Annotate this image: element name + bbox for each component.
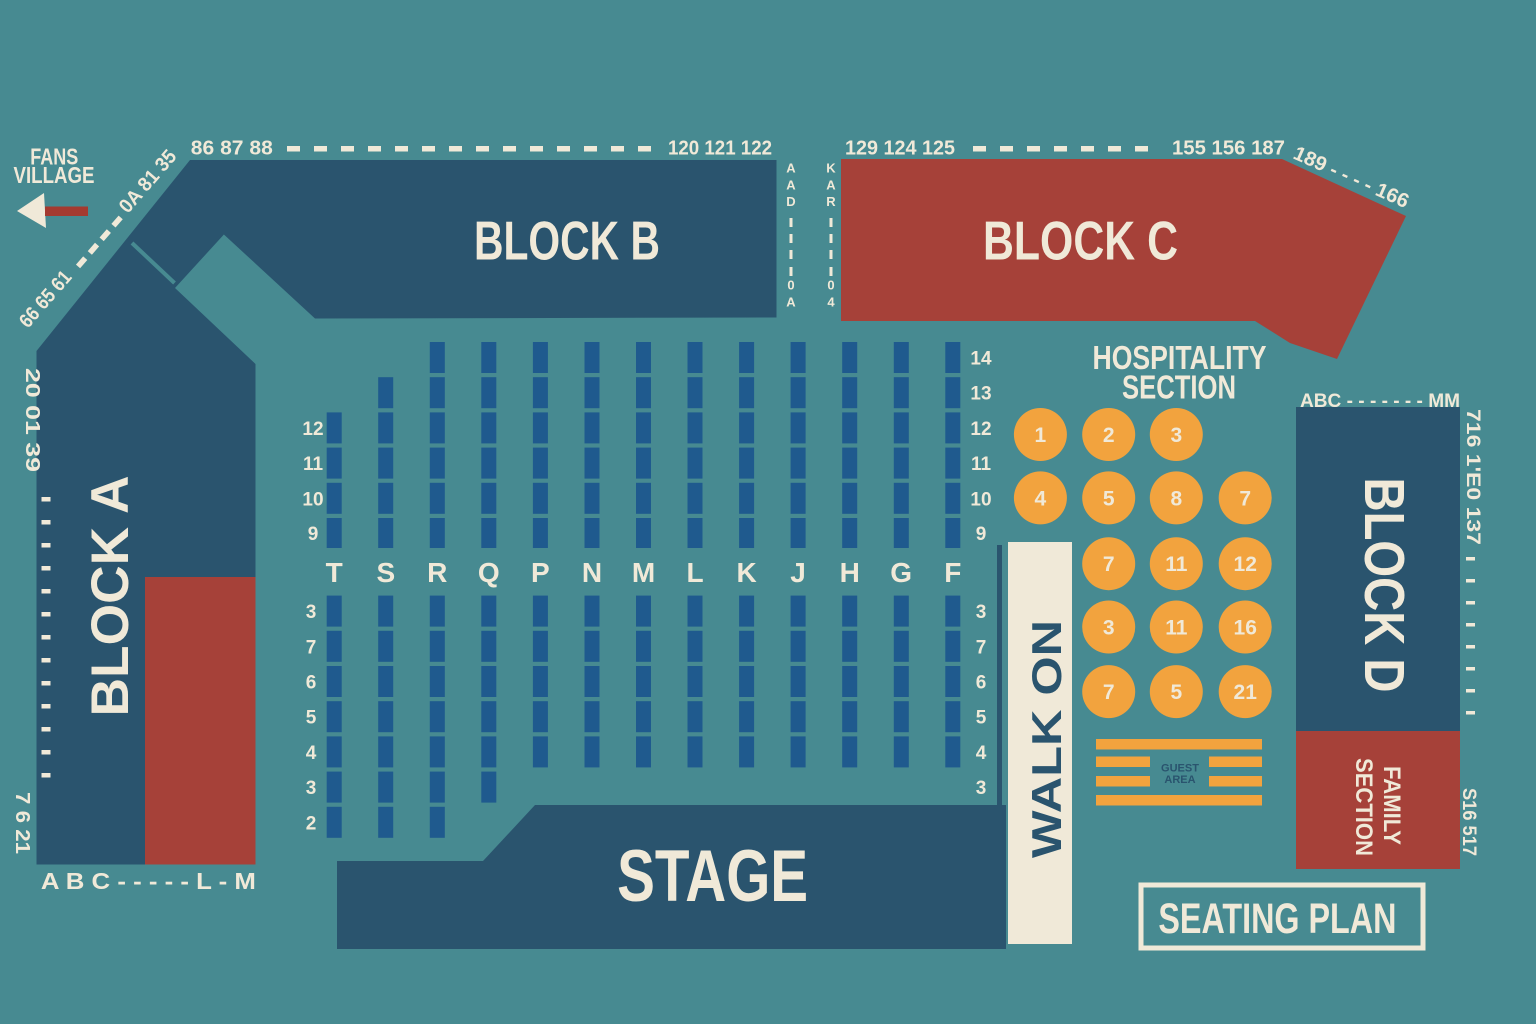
svg-text:3: 3 (976, 778, 987, 799)
svg-text:T: T (326, 557, 343, 588)
svg-text:A: A (786, 178, 796, 193)
svg-text:BLOCK D: BLOCK D (1352, 478, 1416, 693)
svg-text:J: J (790, 557, 806, 588)
svg-text:11: 11 (303, 454, 324, 475)
svg-text:BLOCK B: BLOCK B (474, 209, 660, 271)
svg-text:SECTION: SECTION (1350, 758, 1377, 856)
svg-text:129 124 125: 129 124 125 (845, 138, 955, 160)
svg-text:7: 7 (306, 637, 317, 658)
svg-text:716 1'E0 137: 716 1'E0 137 (1462, 409, 1483, 545)
svg-text:1: 1 (1035, 424, 1047, 447)
svg-text:0: 0 (827, 278, 834, 293)
svg-text:G: G (890, 557, 912, 588)
svg-text:H: H (840, 557, 860, 588)
svg-text:86 87 88: 86 87 88 (191, 138, 273, 160)
svg-text:5: 5 (1170, 681, 1182, 704)
svg-text:AREA: AREA (1164, 774, 1195, 786)
svg-text:5: 5 (1103, 487, 1115, 510)
svg-text:A B C - - - - - L - M: A B C - - - - - L - M (41, 868, 256, 894)
svg-text:S16 517: S16 517 (1458, 788, 1479, 856)
svg-text:SECTION: SECTION (1122, 369, 1236, 406)
svg-text:7 6 21: 7 6 21 (11, 792, 33, 854)
svg-text:11: 11 (1165, 617, 1188, 640)
svg-text:7: 7 (1103, 681, 1115, 704)
svg-text:BLOCK A: BLOCK A (81, 476, 140, 717)
svg-text:2: 2 (1103, 424, 1115, 447)
svg-text:9: 9 (308, 524, 319, 545)
svg-text:10: 10 (302, 489, 323, 510)
svg-text:4: 4 (306, 743, 317, 764)
svg-text:120 121 122: 120 121 122 (668, 138, 772, 160)
svg-text:12: 12 (1234, 553, 1257, 576)
svg-text:9: 9 (976, 524, 987, 545)
svg-text:BLOCK C: BLOCK C (983, 210, 1178, 272)
svg-text:F: F (944, 557, 961, 588)
svg-text:12: 12 (970, 419, 991, 440)
svg-text:WALK ON: WALK ON (1023, 620, 1070, 858)
svg-text:K: K (826, 161, 836, 176)
svg-text:A: A (826, 178, 836, 193)
svg-text:D: D (786, 194, 795, 209)
svg-text:STAGE: STAGE (617, 836, 808, 917)
svg-text:8: 8 (1170, 487, 1182, 510)
svg-text:A: A (786, 161, 796, 176)
svg-text:FAMILY: FAMILY (1378, 766, 1405, 845)
svg-text:14: 14 (970, 349, 992, 370)
svg-text:21: 21 (1234, 681, 1258, 704)
svg-text:4: 4 (976, 743, 987, 764)
svg-text:R: R (427, 557, 447, 588)
svg-text:2: 2 (306, 813, 317, 834)
svg-text:6: 6 (306, 673, 317, 694)
svg-text:SEATING PLAN: SEATING PLAN (1158, 895, 1396, 943)
svg-text:R: R (826, 194, 836, 209)
svg-text:L: L (686, 557, 703, 588)
svg-text:7: 7 (1239, 487, 1251, 510)
svg-text:13: 13 (970, 384, 991, 405)
svg-text:ABC - - - - - - - MM: ABC - - - - - - - MM (1300, 391, 1460, 412)
svg-text:7: 7 (976, 637, 987, 658)
svg-text:0: 0 (787, 278, 794, 293)
svg-text:A: A (786, 295, 796, 310)
svg-text:3: 3 (306, 778, 317, 799)
svg-text:3: 3 (976, 602, 987, 623)
svg-text:M: M (632, 557, 655, 588)
svg-text:VILLAGE: VILLAGE (14, 162, 95, 188)
svg-text:4: 4 (827, 295, 835, 310)
svg-text:6: 6 (976, 673, 987, 694)
svg-text:3: 3 (1103, 617, 1115, 640)
svg-text:5: 5 (306, 708, 317, 729)
svg-text:12: 12 (302, 419, 323, 440)
svg-text:16: 16 (1234, 617, 1257, 640)
svg-text:11: 11 (1165, 553, 1188, 576)
svg-text:GUEST: GUEST (1161, 763, 1199, 775)
svg-text:5: 5 (976, 708, 987, 729)
svg-text:10: 10 (970, 489, 991, 510)
svg-text:3: 3 (306, 602, 317, 623)
svg-text:3: 3 (1170, 424, 1182, 447)
svg-text:K: K (736, 557, 756, 588)
svg-text:7: 7 (1103, 553, 1115, 576)
svg-text:P: P (531, 557, 550, 588)
svg-text:N: N (582, 557, 602, 588)
svg-text:S: S (376, 557, 395, 588)
svg-text:11: 11 (971, 454, 992, 475)
svg-text:4: 4 (1035, 487, 1047, 510)
svg-text:20 01 39: 20 01 39 (21, 368, 43, 472)
svg-text:155 156 187: 155 156 187 (1172, 138, 1285, 160)
svg-text:Q: Q (478, 557, 500, 588)
